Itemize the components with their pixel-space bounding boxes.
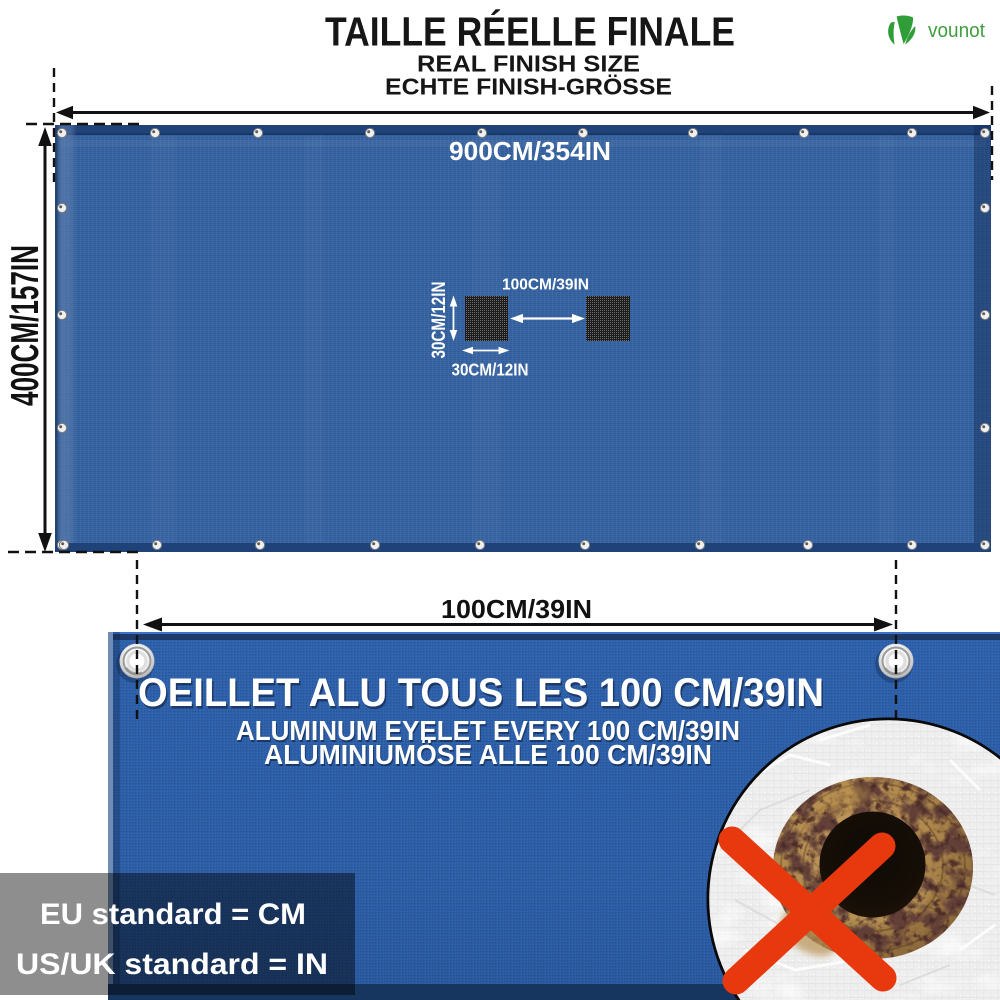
svg-text:100CM/39IN: 100CM/39IN: [502, 277, 589, 294]
svg-text:30CM/12IN: 30CM/12IN: [429, 282, 450, 359]
svg-text:900CM/354IN: 900CM/354IN: [449, 136, 611, 166]
svg-text:US/UK standard = IN: US/UK standard = IN: [16, 948, 328, 981]
svg-text:vounot: vounot: [928, 20, 985, 42]
svg-text:OEILLET ALU TOUS LES 100 CM/39: OEILLET ALU TOUS LES 100 CM/39IN: [138, 671, 824, 715]
svg-text:100CM/39IN: 100CM/39IN: [441, 594, 592, 624]
svg-text:30CM/12IN: 30CM/12IN: [452, 360, 529, 380]
svg-text:ECHTE FINISH-GRÖSSE: ECHTE FINISH-GRÖSSE: [385, 74, 672, 100]
svg-text:EU standard = CM: EU standard = CM: [40, 898, 306, 931]
svg-text:400CM/157IN: 400CM/157IN: [4, 245, 47, 406]
svg-text:TAILLE RÉELLE FINALE: TAILLE RÉELLE FINALE: [325, 9, 735, 55]
svg-text:ALUMINIUMÖSE ALLE 100 CM/39IN: ALUMINIUMÖSE ALLE 100 CM/39IN: [264, 739, 712, 770]
